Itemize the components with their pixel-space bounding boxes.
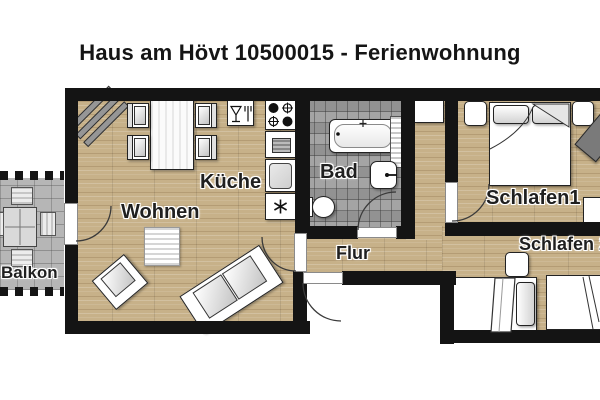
room-label-bad: Bad [320, 161, 358, 184]
room-label-balkon: Balkon [1, 263, 58, 283]
wall-top [65, 88, 600, 101]
entrance-door-swing [303, 283, 341, 321]
wall-bedroom2-bottom [440, 330, 600, 343]
floor-plan: Haus am Hövt 10500015 - Ferienwohnung [0, 0, 600, 400]
stove [265, 99, 296, 130]
dining-symbol-icon [227, 99, 254, 126]
balcony-door [64, 203, 78, 245]
room-label-schlafen2: Schlafen 2 [519, 234, 600, 255]
room-label-schlafen1: Schlafen1 [486, 187, 580, 210]
nightstand [464, 101, 487, 126]
nightstand [505, 252, 529, 277]
wall-bedroom1-left [445, 88, 458, 183]
kitchen-sink [265, 159, 296, 192]
wall-bath-right [401, 88, 415, 239]
coffee-rug [144, 227, 180, 266]
room-label-kueche: Küche [200, 171, 261, 194]
plan-title: Haus am Hövt 10500015 - Ferienwohnung [0, 40, 600, 66]
balcony-railing-bottom [0, 287, 64, 296]
chair-backrest [211, 104, 216, 127]
washbasin [370, 161, 397, 189]
oven [265, 131, 296, 158]
bathtub [329, 119, 397, 153]
wall-kitchen-bath [295, 88, 310, 234]
balcony-railing-top [0, 171, 64, 180]
chair-backrest [128, 104, 133, 127]
room-label-flur: Flur [336, 243, 370, 264]
chair-seat [134, 106, 146, 125]
bathtub-inner [334, 124, 392, 148]
balcony-chair [40, 212, 56, 236]
wall-living-bottom [65, 321, 310, 334]
toilet-bowl [312, 196, 335, 218]
dining-chair [127, 103, 149, 128]
oven-door [272, 138, 291, 153]
chair-backrest [211, 136, 216, 159]
nightstand [572, 101, 594, 126]
room-label-wohnen: Wohnen [121, 201, 200, 224]
bedroom1-door [445, 182, 458, 223]
dining-chair [195, 135, 217, 160]
chair-seat [198, 138, 210, 157]
balcony-chair [11, 187, 33, 205]
freezer [265, 193, 296, 220]
wall-hallway-bottom [342, 271, 456, 285]
dining-chair [127, 135, 149, 160]
chair-backrest [128, 136, 133, 159]
furniture-piece [583, 197, 600, 223]
sink-basin [269, 163, 292, 189]
single-bed [546, 275, 600, 330]
living-room-door [294, 233, 307, 272]
dining-chair [195, 103, 217, 128]
chair-seat [198, 106, 210, 125]
balcony-chair [0, 212, 4, 236]
armchair-seat [100, 262, 135, 297]
closet [414, 100, 444, 123]
bed-pillow [516, 282, 535, 326]
wall-left-upper [65, 88, 78, 204]
chair-seat [134, 138, 146, 157]
bed-pillow [532, 105, 567, 124]
bed-pillow [493, 105, 529, 124]
dining-table [150, 96, 194, 170]
bathroom-door [357, 227, 397, 238]
balcony-table [3, 207, 37, 247]
entrance-door [303, 272, 343, 284]
